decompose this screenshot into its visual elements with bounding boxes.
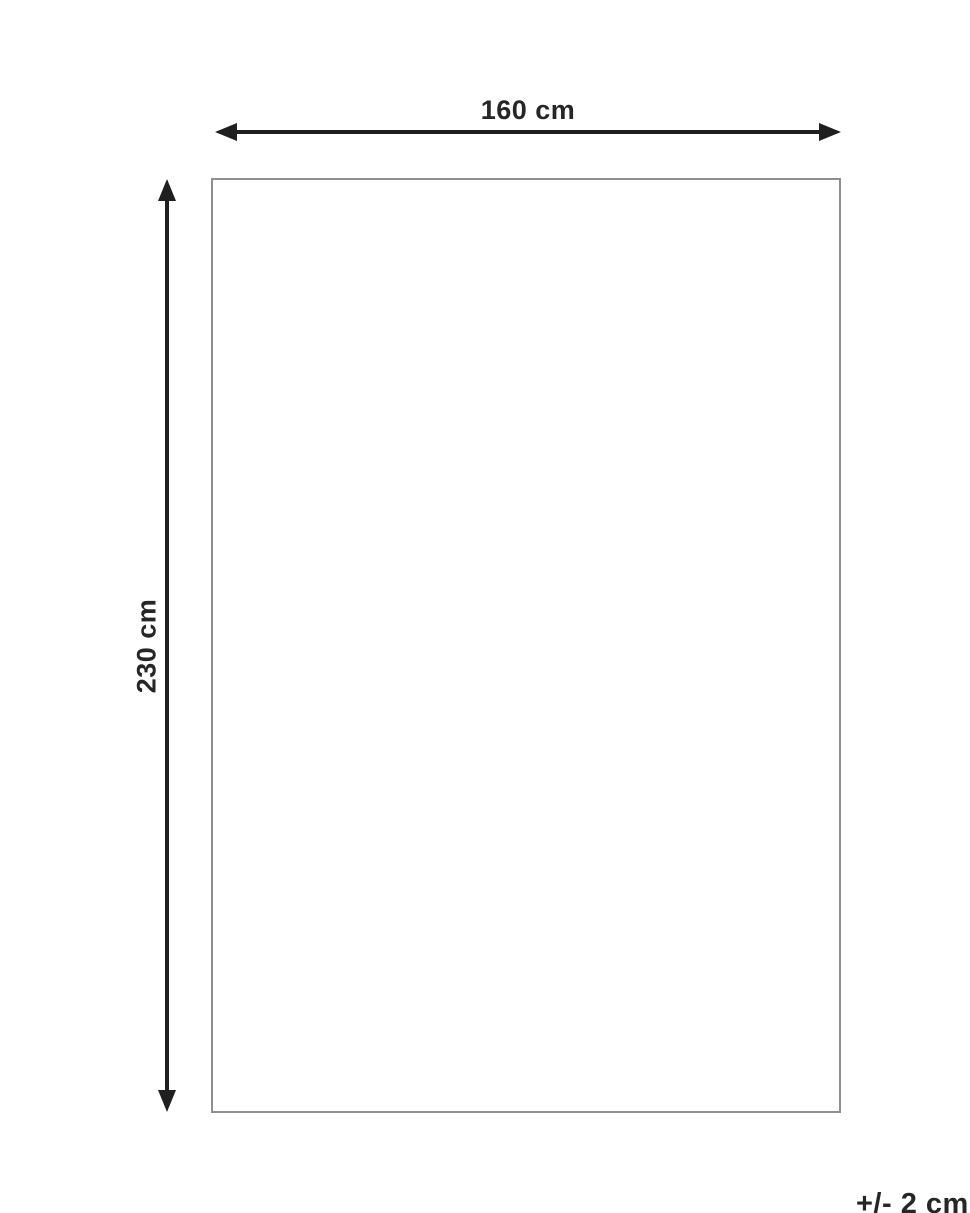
dimension-diagram: 160 cm 230 cm +/- 2 cm	[0, 0, 970, 1213]
tolerance-label: +/- 2 cm	[856, 1188, 969, 1213]
product-outline-rect	[212, 179, 840, 1112]
width-dimension-label: 160 cm	[216, 95, 840, 126]
height-arrow-bottom-head-icon	[158, 1090, 176, 1112]
height-dimension-label: 230 cm	[132, 599, 163, 694]
height-arrow-top-head-icon	[158, 179, 176, 201]
